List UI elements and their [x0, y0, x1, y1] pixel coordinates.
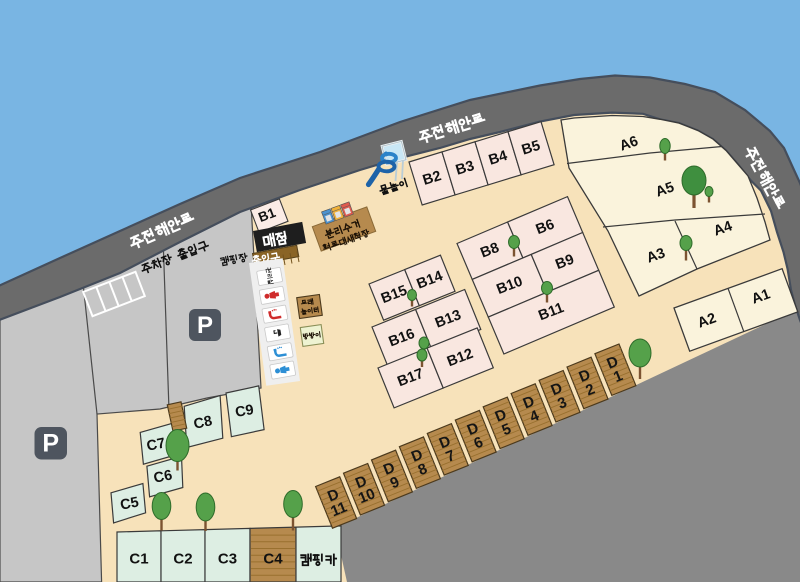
svg-text:P: P	[42, 430, 59, 458]
svg-text:C3: C3	[218, 551, 237, 568]
svg-text:C2: C2	[173, 551, 192, 568]
svg-text:P: P	[197, 312, 213, 339]
svg-text:C1: C1	[129, 551, 148, 568]
svg-text:C4: C4	[263, 551, 283, 568]
svg-text:C9: C9	[234, 402, 255, 421]
